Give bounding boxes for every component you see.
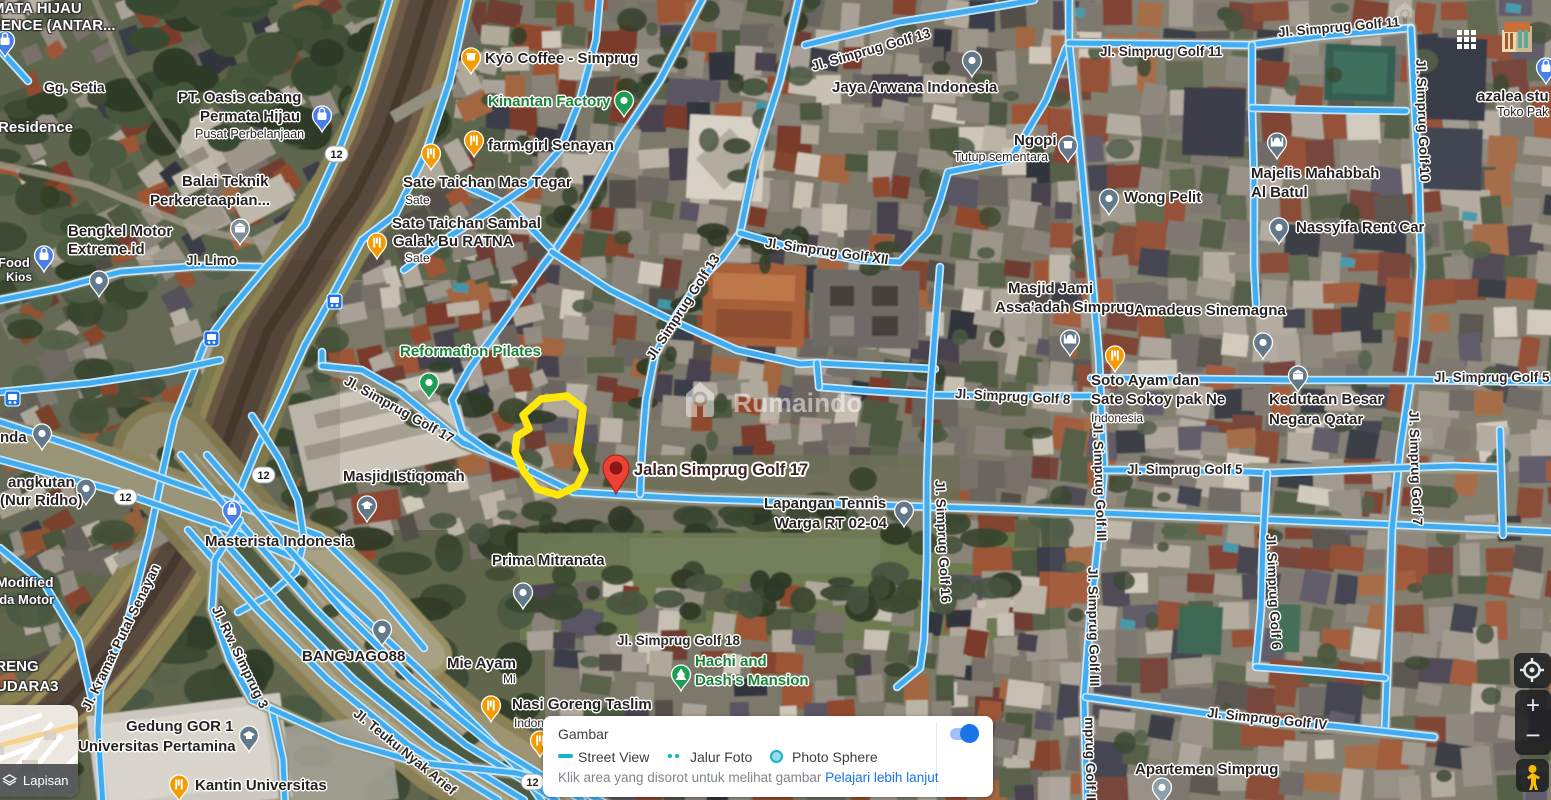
svg-text:12: 12 — [330, 149, 342, 161]
svg-text:12: 12 — [119, 492, 131, 504]
svg-text:12: 12 — [526, 777, 538, 789]
svg-text:12: 12 — [257, 470, 269, 482]
svg-text:Temukan Properti Impian: Temukan Properti Impian — [752, 419, 830, 426]
svg-text:Rumaindo: Rumaindo — [733, 388, 863, 418]
